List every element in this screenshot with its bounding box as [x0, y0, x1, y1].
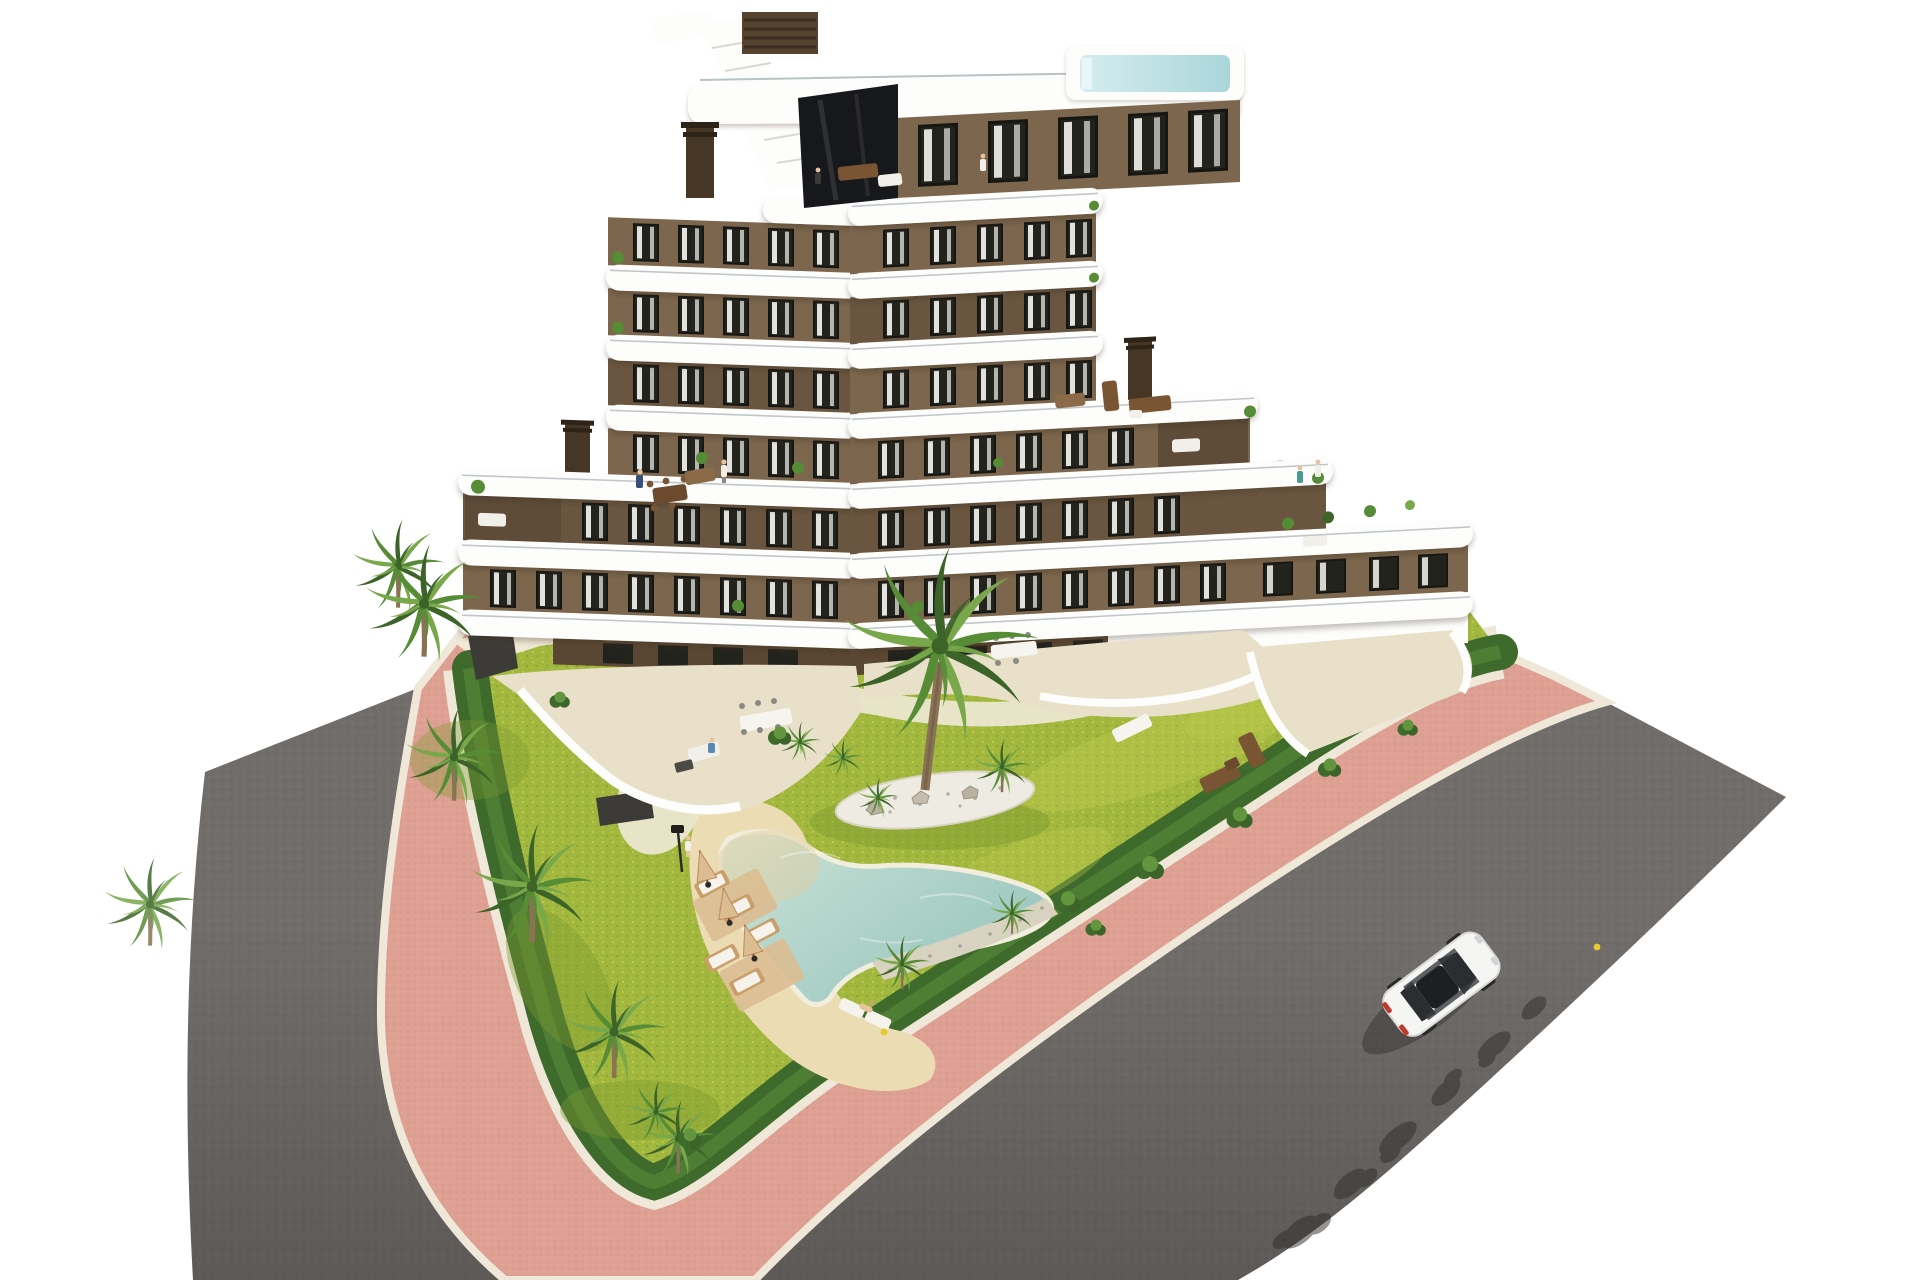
- roof-pergola: [742, 12, 818, 59]
- corner-glass: [798, 84, 898, 208]
- person: [1315, 460, 1321, 477]
- chimney: [561, 420, 594, 473]
- rooftop-pool: [1066, 46, 1244, 100]
- balcony-sofa: [478, 513, 506, 527]
- beach-bag: [881, 1029, 888, 1036]
- aerial-render: [0, 0, 1920, 1280]
- person: [1297, 466, 1303, 483]
- chimney: [681, 122, 719, 198]
- chimney: [1124, 336, 1156, 400]
- person: [980, 154, 986, 171]
- render-canvas: [0, 0, 1920, 1280]
- road-debris: [1594, 944, 1601, 951]
- balcony-sofa: [1172, 438, 1200, 452]
- person: [815, 168, 821, 184]
